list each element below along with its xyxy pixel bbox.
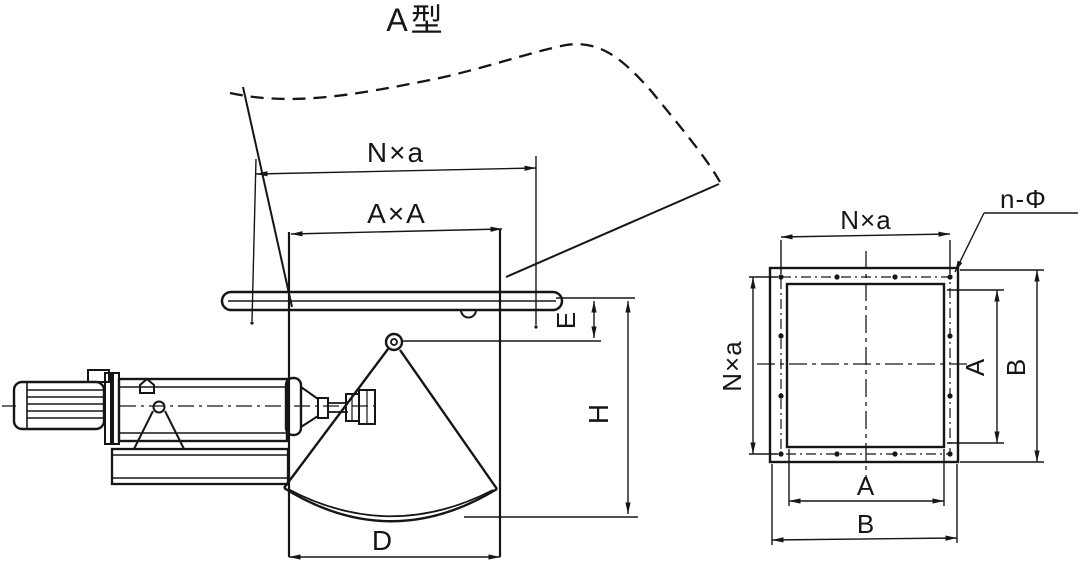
b-right-label: B xyxy=(1001,358,1031,376)
sector-gate xyxy=(284,334,497,521)
nxa-front-label: N×a xyxy=(367,137,425,168)
gate-pivot-boss xyxy=(386,334,402,350)
n-phi-label: n-Φ xyxy=(1000,184,1047,214)
ext-end-dot-left xyxy=(250,321,253,324)
gate-right-edge xyxy=(400,350,497,489)
motor-cooling-fins xyxy=(27,390,104,418)
motor-flange-bar-1 xyxy=(105,373,111,444)
hopper-left-edge xyxy=(243,87,292,307)
nxa-dimension-line xyxy=(256,168,536,174)
motor-flange-bar-2 xyxy=(113,373,119,444)
bolt-holes xyxy=(778,274,952,456)
drawing-title: A型 xyxy=(386,2,445,38)
b-bottom-label: B xyxy=(857,509,875,539)
dimension-nxa-front: N×a xyxy=(250,137,537,329)
rod-cone-reducer xyxy=(301,387,318,427)
flange-view: N×a n-Φ N×a A B A xyxy=(717,184,1078,545)
actuator xyxy=(2,370,376,484)
actuator-cylinder xyxy=(119,379,287,441)
axa-label: A×A xyxy=(367,198,427,229)
dimension-a-right: A xyxy=(947,290,1004,443)
hopper-outline xyxy=(230,44,720,307)
n-phi-leader-line xyxy=(955,213,984,272)
gate-left-edge xyxy=(284,349,388,488)
hopper-right-edge xyxy=(506,184,719,277)
hopper-dashed-contour xyxy=(230,44,720,182)
nxa-flange-left-label: N×a xyxy=(717,340,747,391)
axa-dimension-line xyxy=(291,229,502,234)
ext-end-dot-right xyxy=(534,325,537,328)
dimension-h: H xyxy=(464,301,638,517)
flange-outer-square xyxy=(770,268,958,462)
cylinder-top-nut xyxy=(140,379,154,393)
top-flange-plate xyxy=(222,292,562,318)
trunnion-legs xyxy=(134,411,184,449)
a-bottom-label: A xyxy=(857,471,875,501)
nxa-extension-lines xyxy=(252,156,536,325)
a-right-label: A xyxy=(960,358,990,376)
dimension-axa: A×A xyxy=(291,198,502,234)
dimension-e: E xyxy=(403,298,635,341)
e-label: E xyxy=(551,311,581,329)
gate-arc-inner xyxy=(288,489,493,516)
engineering-drawing-sheet: A型 xyxy=(0,0,1080,586)
drawing-canvas: A型 xyxy=(0,0,1080,586)
nxa-flange-top-label: N×a xyxy=(840,205,891,235)
d-label: D xyxy=(372,525,394,556)
actuator-base-plate xyxy=(112,449,288,484)
rod-collar xyxy=(318,398,328,418)
bolt-hole-callout: n-Φ xyxy=(955,184,1078,272)
actuator-base-plate-lines xyxy=(112,455,288,478)
h-label: H xyxy=(583,402,614,424)
dimension-d: D xyxy=(289,525,500,557)
gate-pivot-hole xyxy=(391,339,397,345)
trunnion-pin xyxy=(154,402,165,413)
flange-centerlines xyxy=(757,251,974,479)
